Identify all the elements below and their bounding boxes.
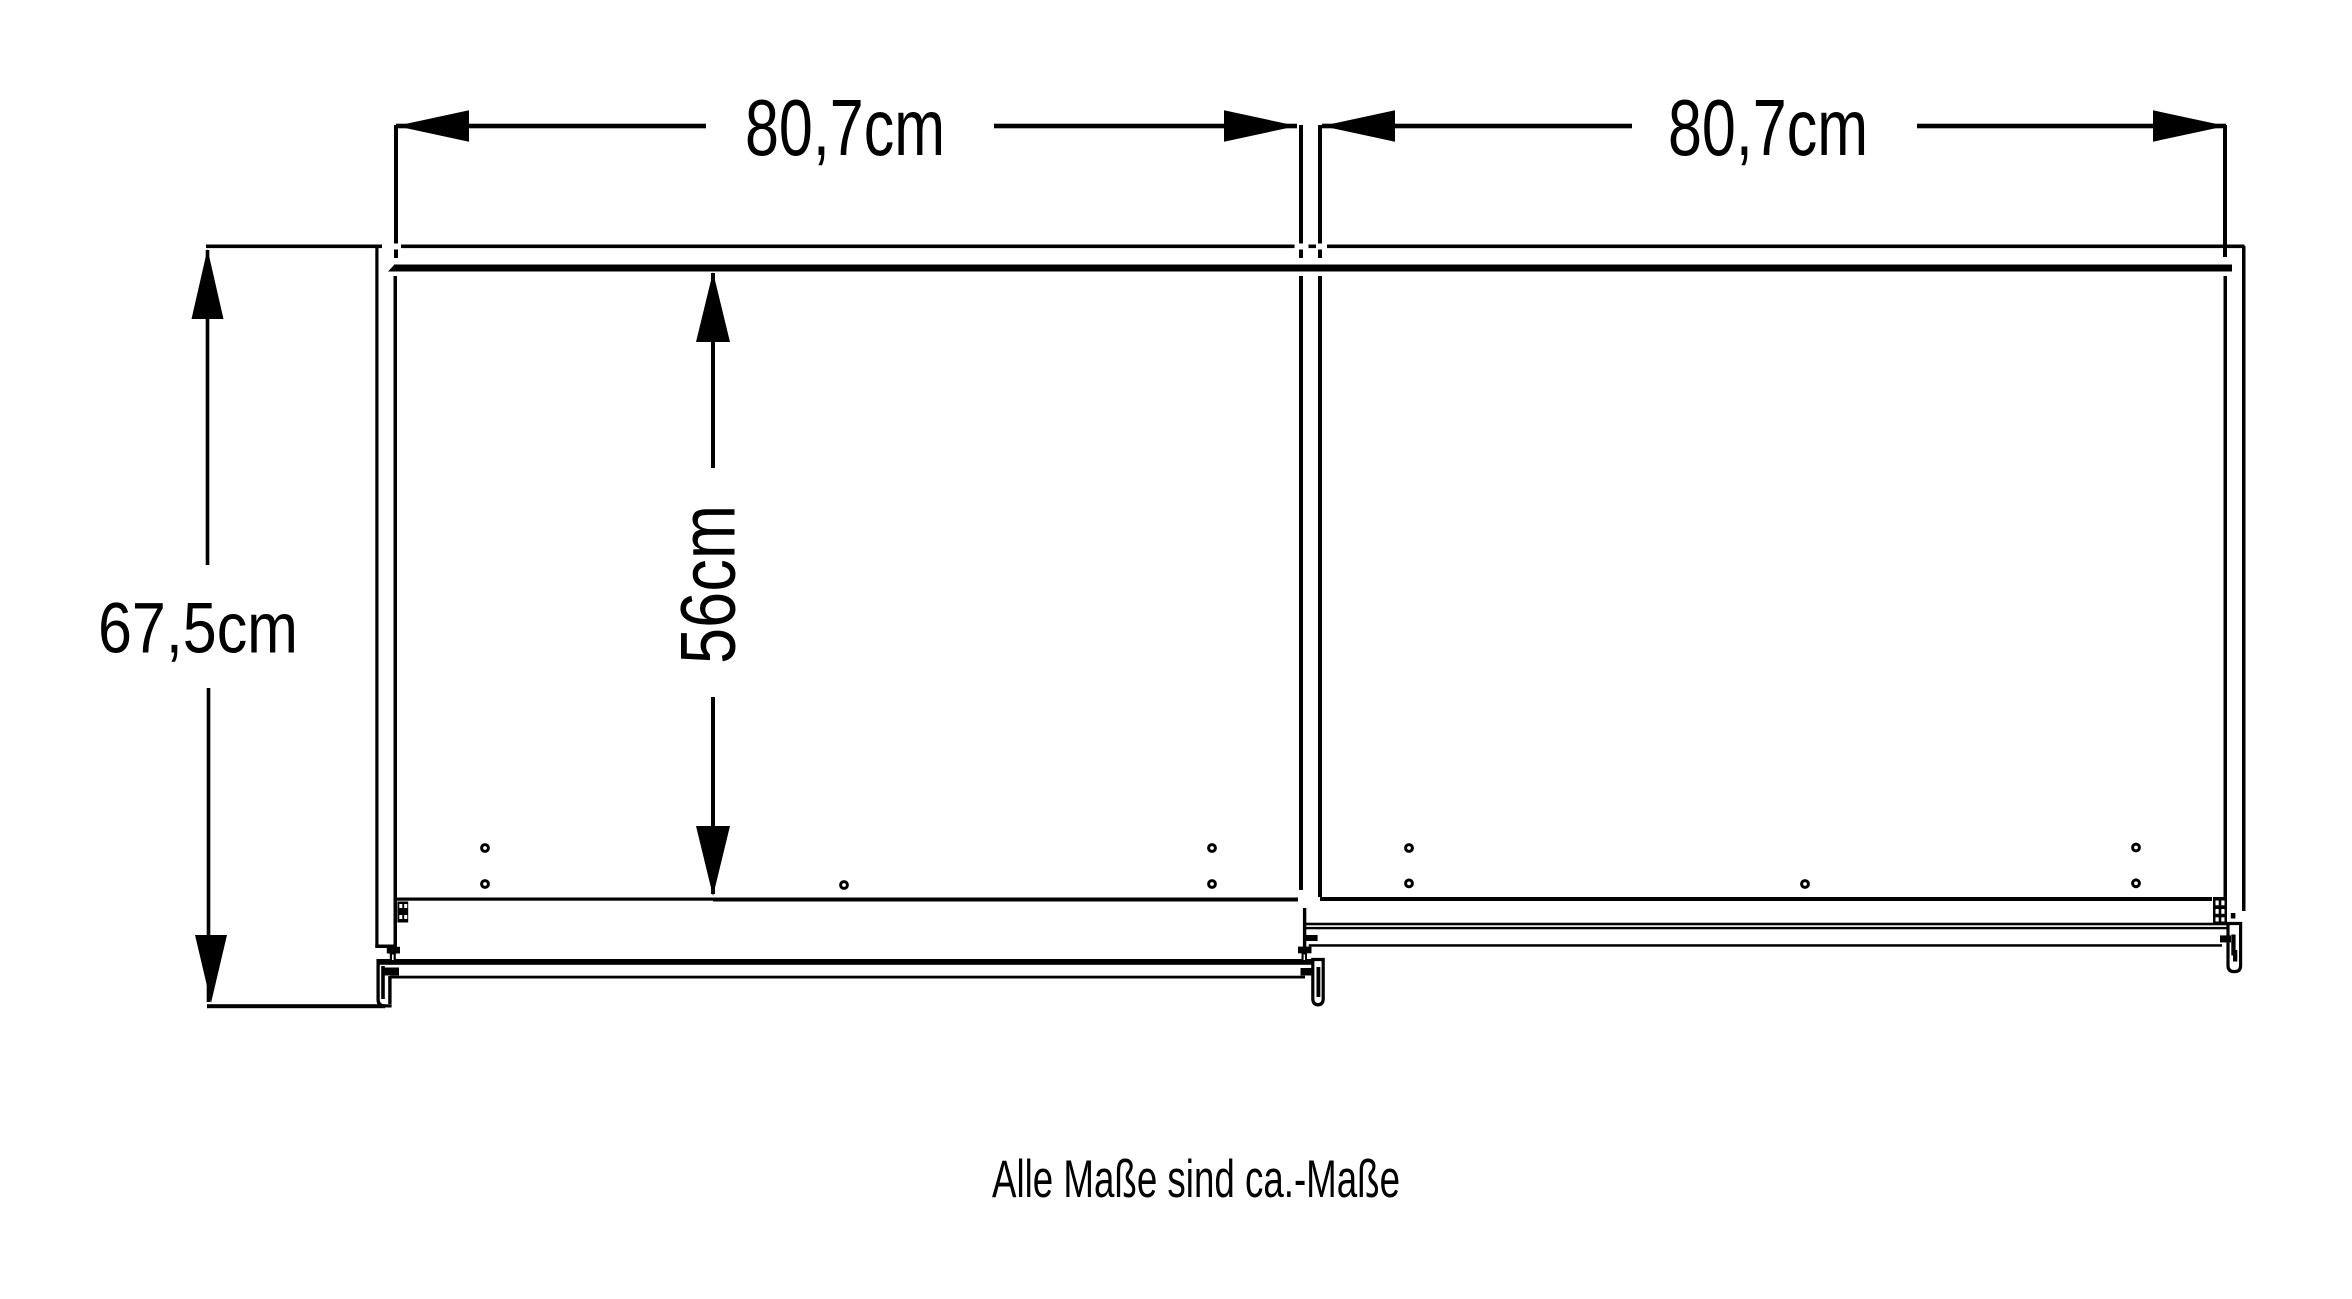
svg-text:67,5cm: 67,5cm	[98, 590, 298, 669]
svg-text:56cm: 56cm	[664, 505, 752, 664]
svg-text:Alle Maße sind ca.-Maße: Alle Maße sind ca.-Maße	[992, 1150, 1400, 1209]
svg-text:80,7cm: 80,7cm	[1668, 83, 1868, 172]
svg-text:80,7cm: 80,7cm	[745, 83, 945, 172]
